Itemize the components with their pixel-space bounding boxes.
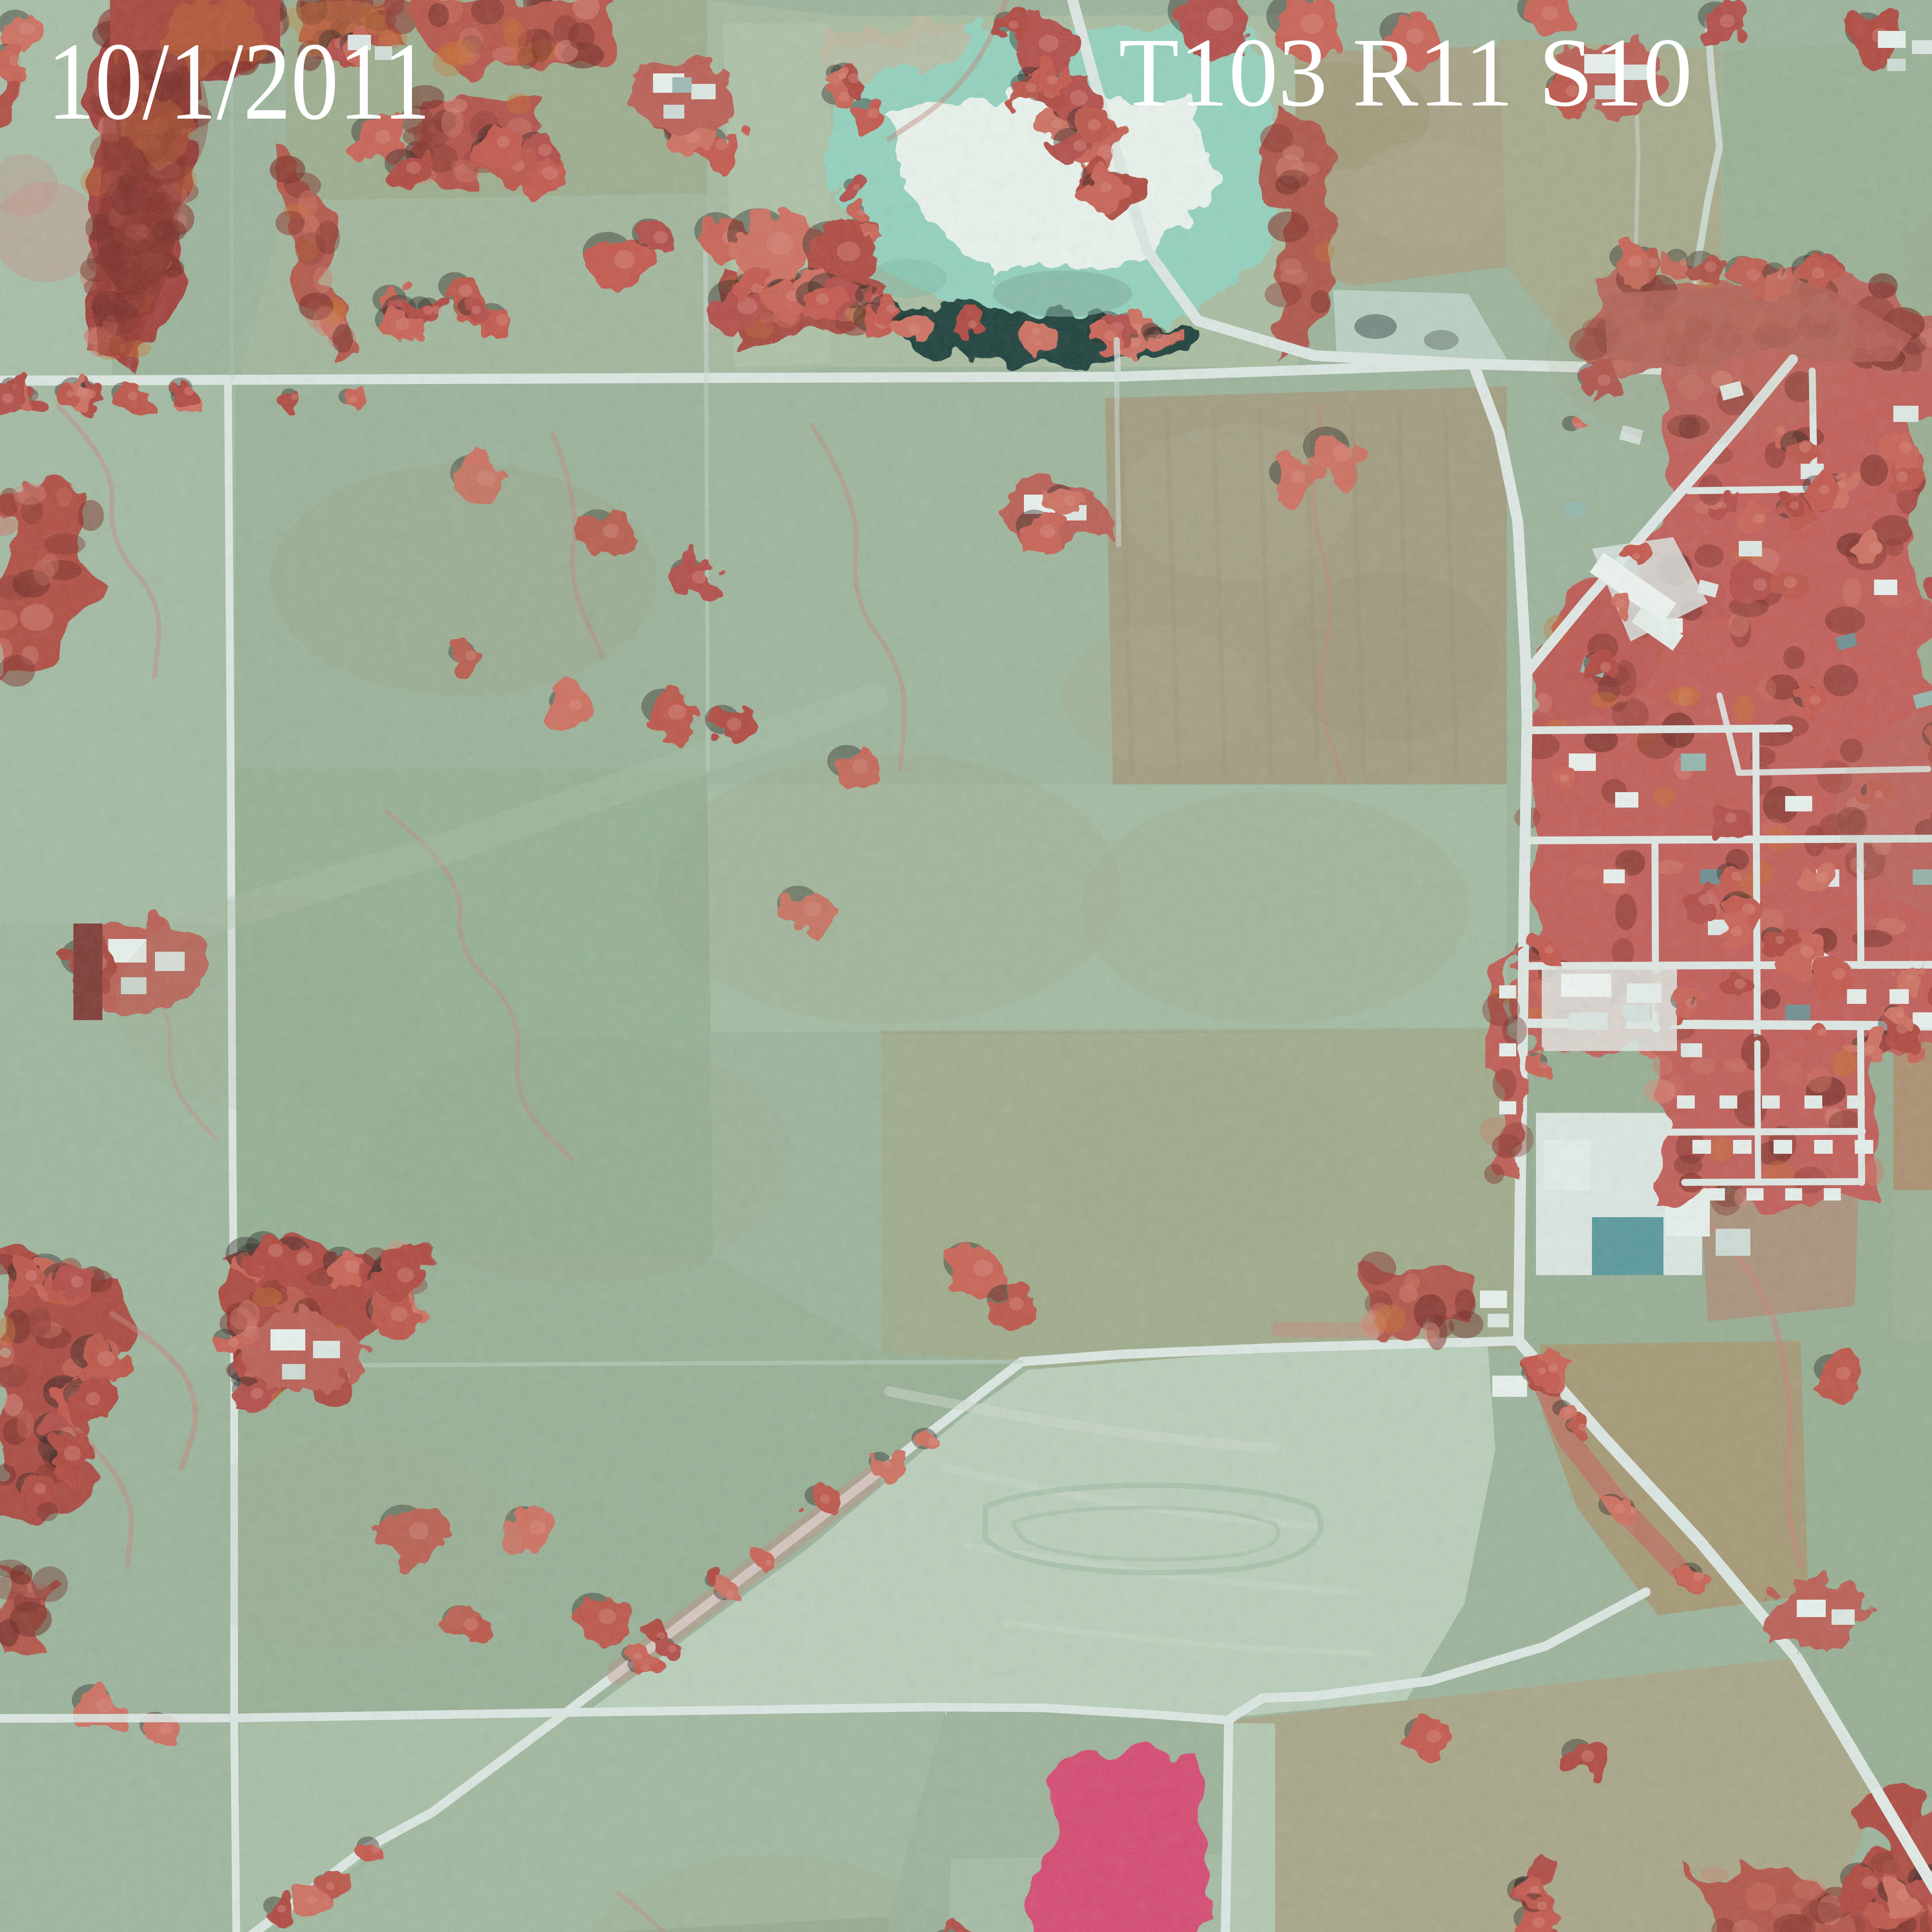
svg-text:10/1/2011: 10/1/2011 (47, 19, 430, 143)
svg-text:T103 R11 S10: T103 R11 S10 (1119, 18, 1692, 127)
